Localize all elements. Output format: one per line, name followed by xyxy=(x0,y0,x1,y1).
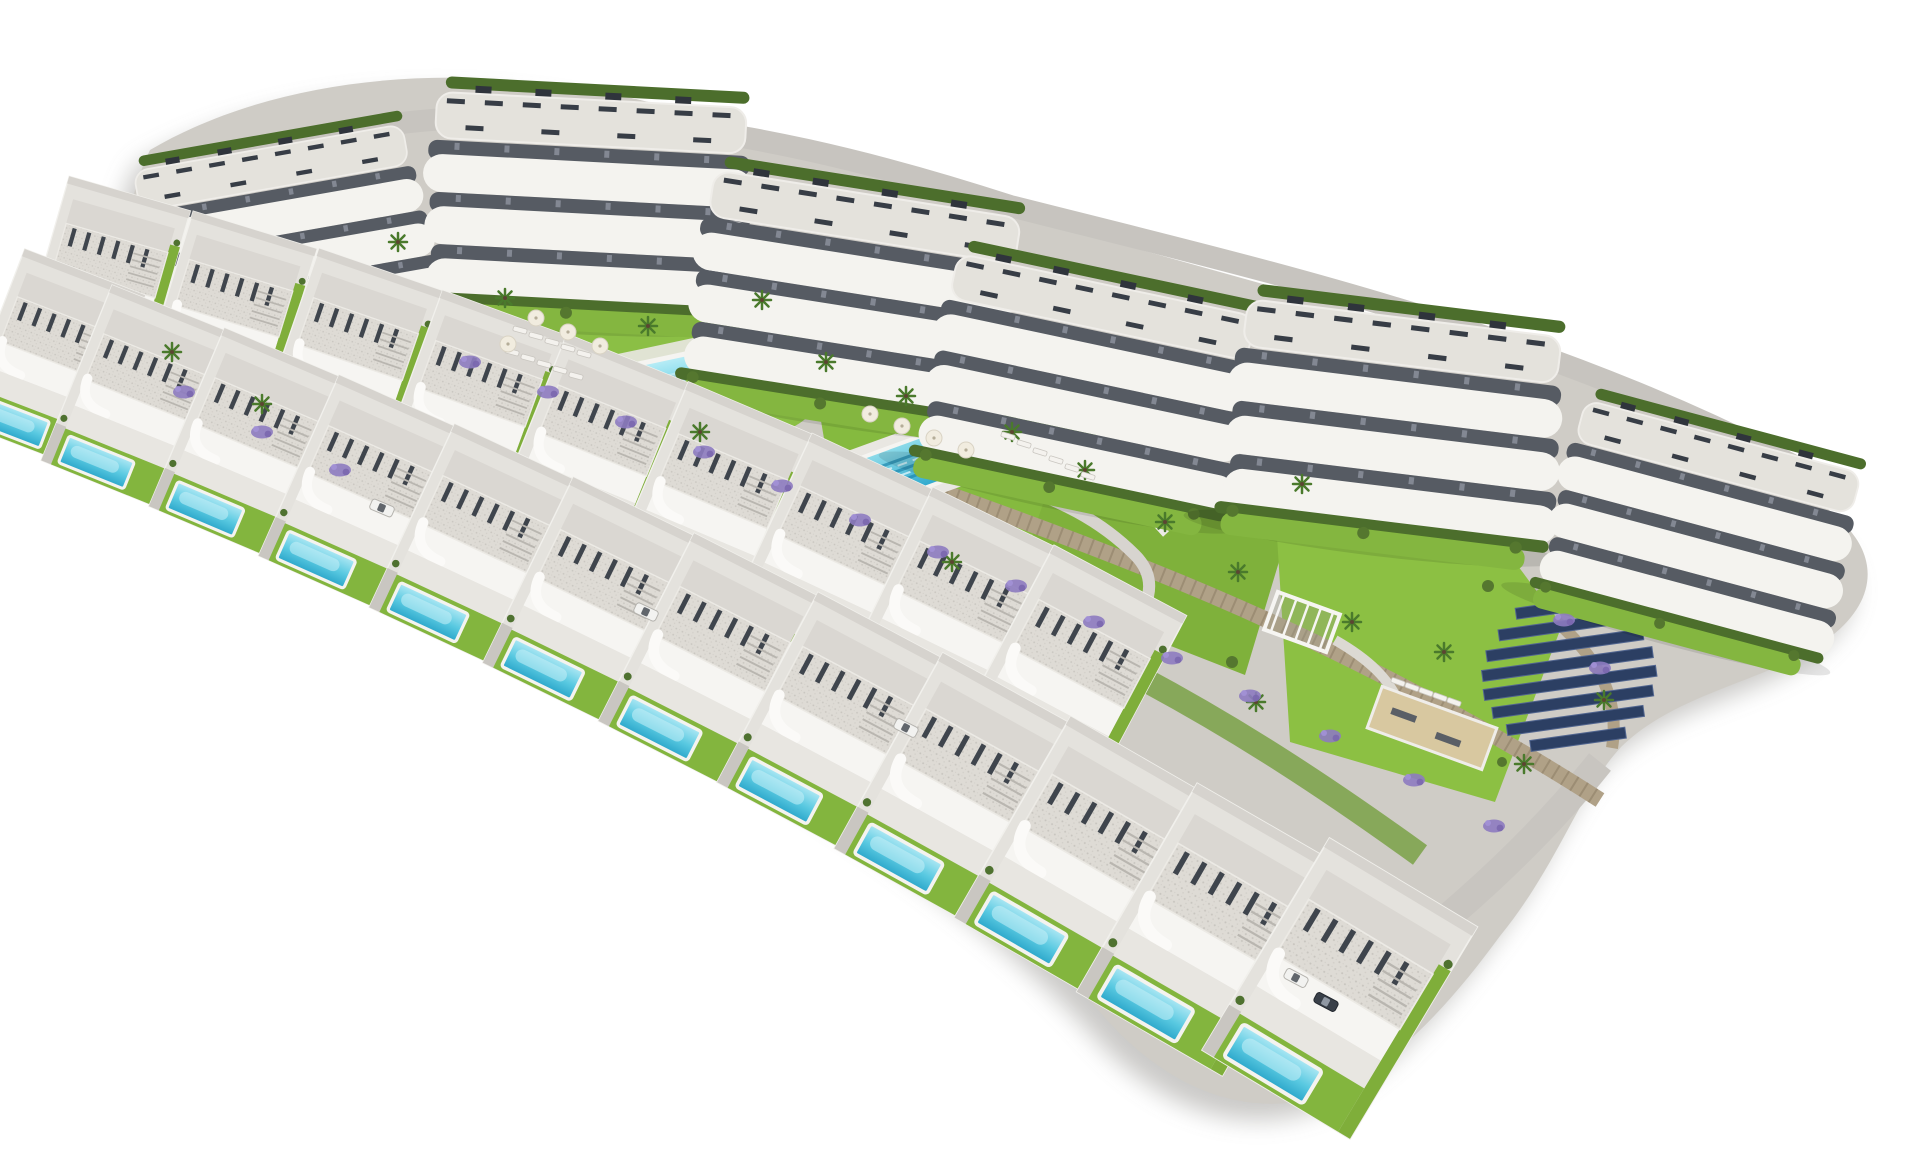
lavender-patch xyxy=(771,480,793,493)
palm-tree-icon xyxy=(389,233,407,251)
palm-tree-icon xyxy=(639,317,657,335)
parasol xyxy=(894,418,910,434)
lavender-patch xyxy=(1239,690,1261,703)
lavender-patch xyxy=(927,546,949,559)
lavender-patch xyxy=(459,356,481,369)
lavender-patch xyxy=(1005,580,1027,593)
palm-tree-icon xyxy=(1156,513,1174,531)
palm-tree-icon xyxy=(163,343,181,361)
lavender-patch xyxy=(1161,652,1183,665)
palm-tree-icon xyxy=(1293,475,1311,493)
palm-tree-icon xyxy=(1435,643,1453,661)
lavender-patch xyxy=(173,386,195,399)
lavender-patch xyxy=(849,514,871,527)
parasol xyxy=(500,336,516,352)
lavender-patch xyxy=(329,464,351,477)
palm-tree-icon xyxy=(691,423,709,441)
lavender-patch xyxy=(1319,730,1341,743)
lavender-patch xyxy=(1083,616,1105,629)
palm-tree-icon xyxy=(817,353,835,371)
palm-tree-icon xyxy=(496,289,514,307)
lavender-patch xyxy=(1483,820,1505,833)
palm-tree-icon xyxy=(897,387,915,405)
parasol xyxy=(560,324,576,340)
lavender-patch xyxy=(693,446,715,459)
palm-tree-icon xyxy=(1595,691,1613,709)
parasol xyxy=(592,338,608,354)
palm-tree-icon xyxy=(1343,613,1361,631)
rendering-canvas: Aerial 3D architectural rendering of a h… xyxy=(0,0,1920,1152)
aerial-render: Aerial 3D architectural rendering of a h… xyxy=(0,0,1920,1152)
parasol xyxy=(926,430,942,446)
palm-tree-icon xyxy=(253,395,271,413)
parasol xyxy=(958,442,974,458)
lavender-patch xyxy=(537,386,559,399)
lavender-patch xyxy=(251,426,273,439)
parasol xyxy=(528,310,544,326)
lavender-patch xyxy=(1553,614,1575,627)
lavender-patch xyxy=(1403,774,1425,787)
lavender-patch xyxy=(615,416,637,429)
palm-tree-icon xyxy=(1229,563,1247,581)
palm-tree-icon xyxy=(1515,755,1533,773)
lavender-patch xyxy=(1589,662,1611,675)
parasol xyxy=(862,406,878,422)
palm-tree-icon xyxy=(753,291,771,309)
